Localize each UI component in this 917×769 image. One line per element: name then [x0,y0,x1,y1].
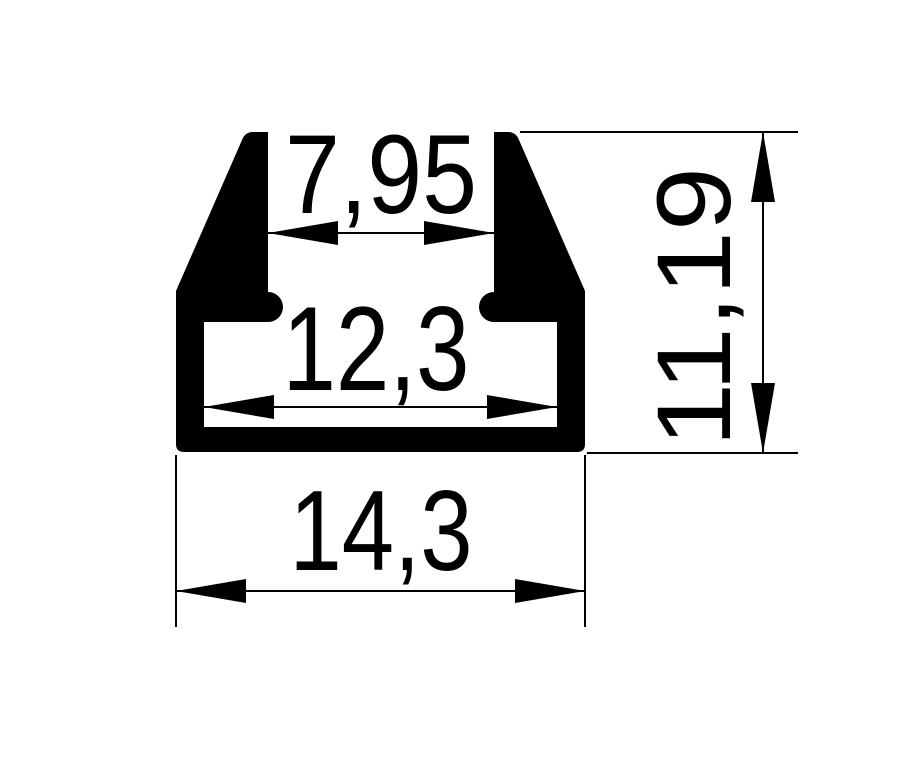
arrowhead-right [515,579,585,603]
dimension-label-overall-height: 11,19 [636,167,753,447]
arrowhead-bottom [751,383,775,453]
dimension-label-overall-width: 14,3 [290,468,473,595]
arrowhead-top [751,132,775,202]
arrowhead-left [204,395,274,419]
arrowhead-left [176,579,246,603]
dimension-top-opening: 7,95 [268,112,494,245]
arrowhead-right [487,395,557,419]
dimension-label-inner-width: 12,3 [283,282,470,416]
dimension-overall-width: 14,3 [176,455,585,627]
drawing-canvas: 7,95 12,3 14,3 11,19 [0,0,917,769]
technical-drawing: 7,95 12,3 14,3 11,19 [0,0,917,769]
dimension-label-top-opening: 7,95 [285,112,477,237]
